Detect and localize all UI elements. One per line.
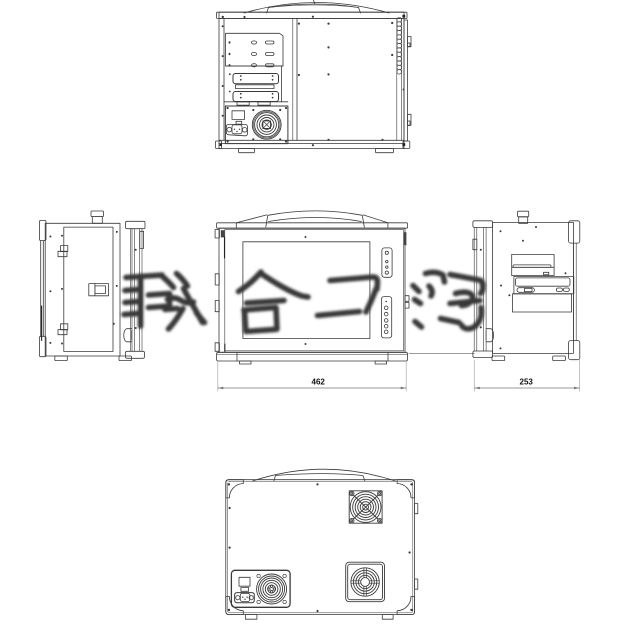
svg-text:253: 253 [520,377,534,386]
svg-text:462: 462 [312,377,326,386]
